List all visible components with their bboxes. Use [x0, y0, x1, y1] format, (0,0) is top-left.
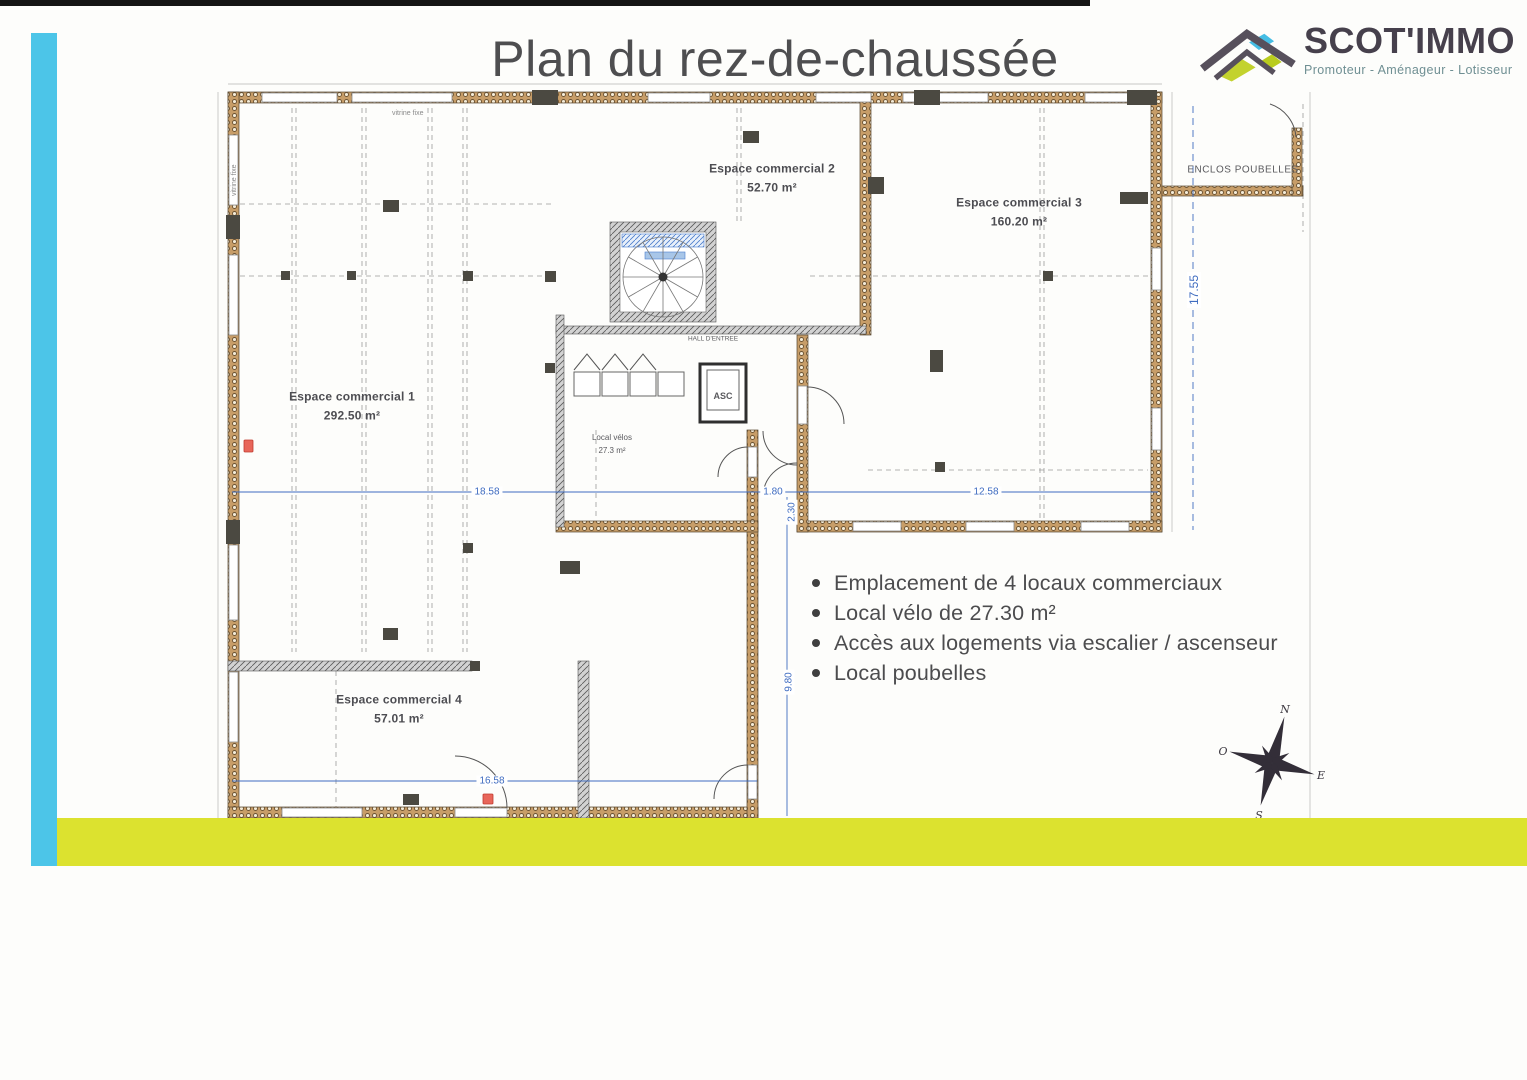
annotation-vitrine-left: vitrine fixe: [231, 164, 238, 196]
room-label-espace-1: Espace commercial 1 292.50 m²: [289, 387, 415, 424]
room-label-espace-3: Espace commercial 3 160.20 m²: [956, 193, 1082, 230]
bottom-yellow-stripe: [57, 818, 1527, 866]
dim-16-58: 16.58: [476, 776, 507, 787]
annotation-vitrine-top: vitrine fixe: [392, 110, 424, 117]
scanned-plan-page: N S O E Plan du rez-de-chaussée SCOT'IMM…: [0, 0, 1527, 1080]
top-black-bar: [0, 0, 1090, 6]
interior-walls: [228, 222, 866, 818]
dim-2-30: 2.30: [787, 499, 798, 524]
logo: SCOT'IMMO Promoteur - Aménageur - Lotiss…: [1198, 18, 1515, 82]
compass-west-label: O: [1218, 745, 1227, 758]
room-label-enclos-poubelles: ENCLOS POUBELLES: [1187, 165, 1298, 176]
bullet-icon: [812, 579, 820, 587]
room-label-hall: HALL D'ENTREE: [688, 336, 738, 343]
note-1-text: Emplacement de 4 locaux commerciaux: [834, 571, 1222, 596]
room-label-espace-2: Espace commercial 2 52.70 m²: [709, 159, 835, 196]
room-4-area: 57.01 m²: [336, 709, 462, 728]
room-3-area: 160.20 m²: [956, 212, 1082, 231]
room-1-area: 292.50 m²: [289, 406, 415, 425]
compass-rose: N S O E: [1218, 703, 1327, 822]
lockers: [574, 354, 684, 396]
compass-east-label: E: [1316, 769, 1325, 782]
logo-tagline: Promoteur - Aménageur - Lotisseur: [1304, 63, 1515, 77]
room-label-espace-4: Espace commercial 4 57.01 m²: [336, 690, 462, 727]
note-3-text: Accès aux logements via escalier / ascen…: [834, 631, 1278, 656]
compass-north-label: N: [1279, 703, 1290, 716]
dim-18-58: 18.58: [471, 487, 502, 498]
bullet-icon: [812, 669, 820, 677]
bullet-icon: [812, 609, 820, 617]
note-item-3: Accès aux logements via escalier / ascen…: [812, 628, 1278, 658]
velos-area: 27.3 m²: [592, 445, 632, 458]
dim-1-80: 1.80: [760, 487, 785, 498]
note-item-2: Local vélo de 27.30 m²: [812, 598, 1278, 628]
note-item-1: Emplacement de 4 locaux commerciaux: [812, 568, 1278, 598]
dim-12-58: 12.58: [970, 487, 1001, 498]
room-2-area: 52.70 m²: [709, 178, 835, 197]
safety-markers: [244, 440, 493, 804]
logo-roof-icon: [1198, 18, 1298, 82]
note-item-4: Local poubelles: [812, 658, 1278, 688]
left-blue-stripe: [31, 33, 57, 866]
room-label-asc: ASC: [713, 391, 732, 401]
notes-list: Emplacement de 4 locaux commerciaux Loca…: [812, 568, 1278, 688]
note-2-text: Local vélo de 27.30 m²: [834, 601, 1056, 626]
page-title: Plan du rez-de-chaussée: [370, 34, 1180, 84]
dim-9-80: 9.80: [784, 669, 795, 694]
dim-17-55: 17.55: [1187, 272, 1201, 308]
velos-name: Local vélos: [592, 432, 632, 445]
room-1-name: Espace commercial 1: [289, 387, 415, 406]
note-4-text: Local poubelles: [834, 661, 986, 686]
room-label-local-velos: Local vélos 27.3 m²: [592, 432, 632, 458]
room-2-name: Espace commercial 2: [709, 159, 835, 178]
room-4-name: Espace commercial 4: [336, 690, 462, 709]
logo-name: SCOT'IMMO: [1304, 23, 1515, 59]
bullet-icon: [812, 639, 820, 647]
room-3-name: Espace commercial 3: [956, 193, 1082, 212]
